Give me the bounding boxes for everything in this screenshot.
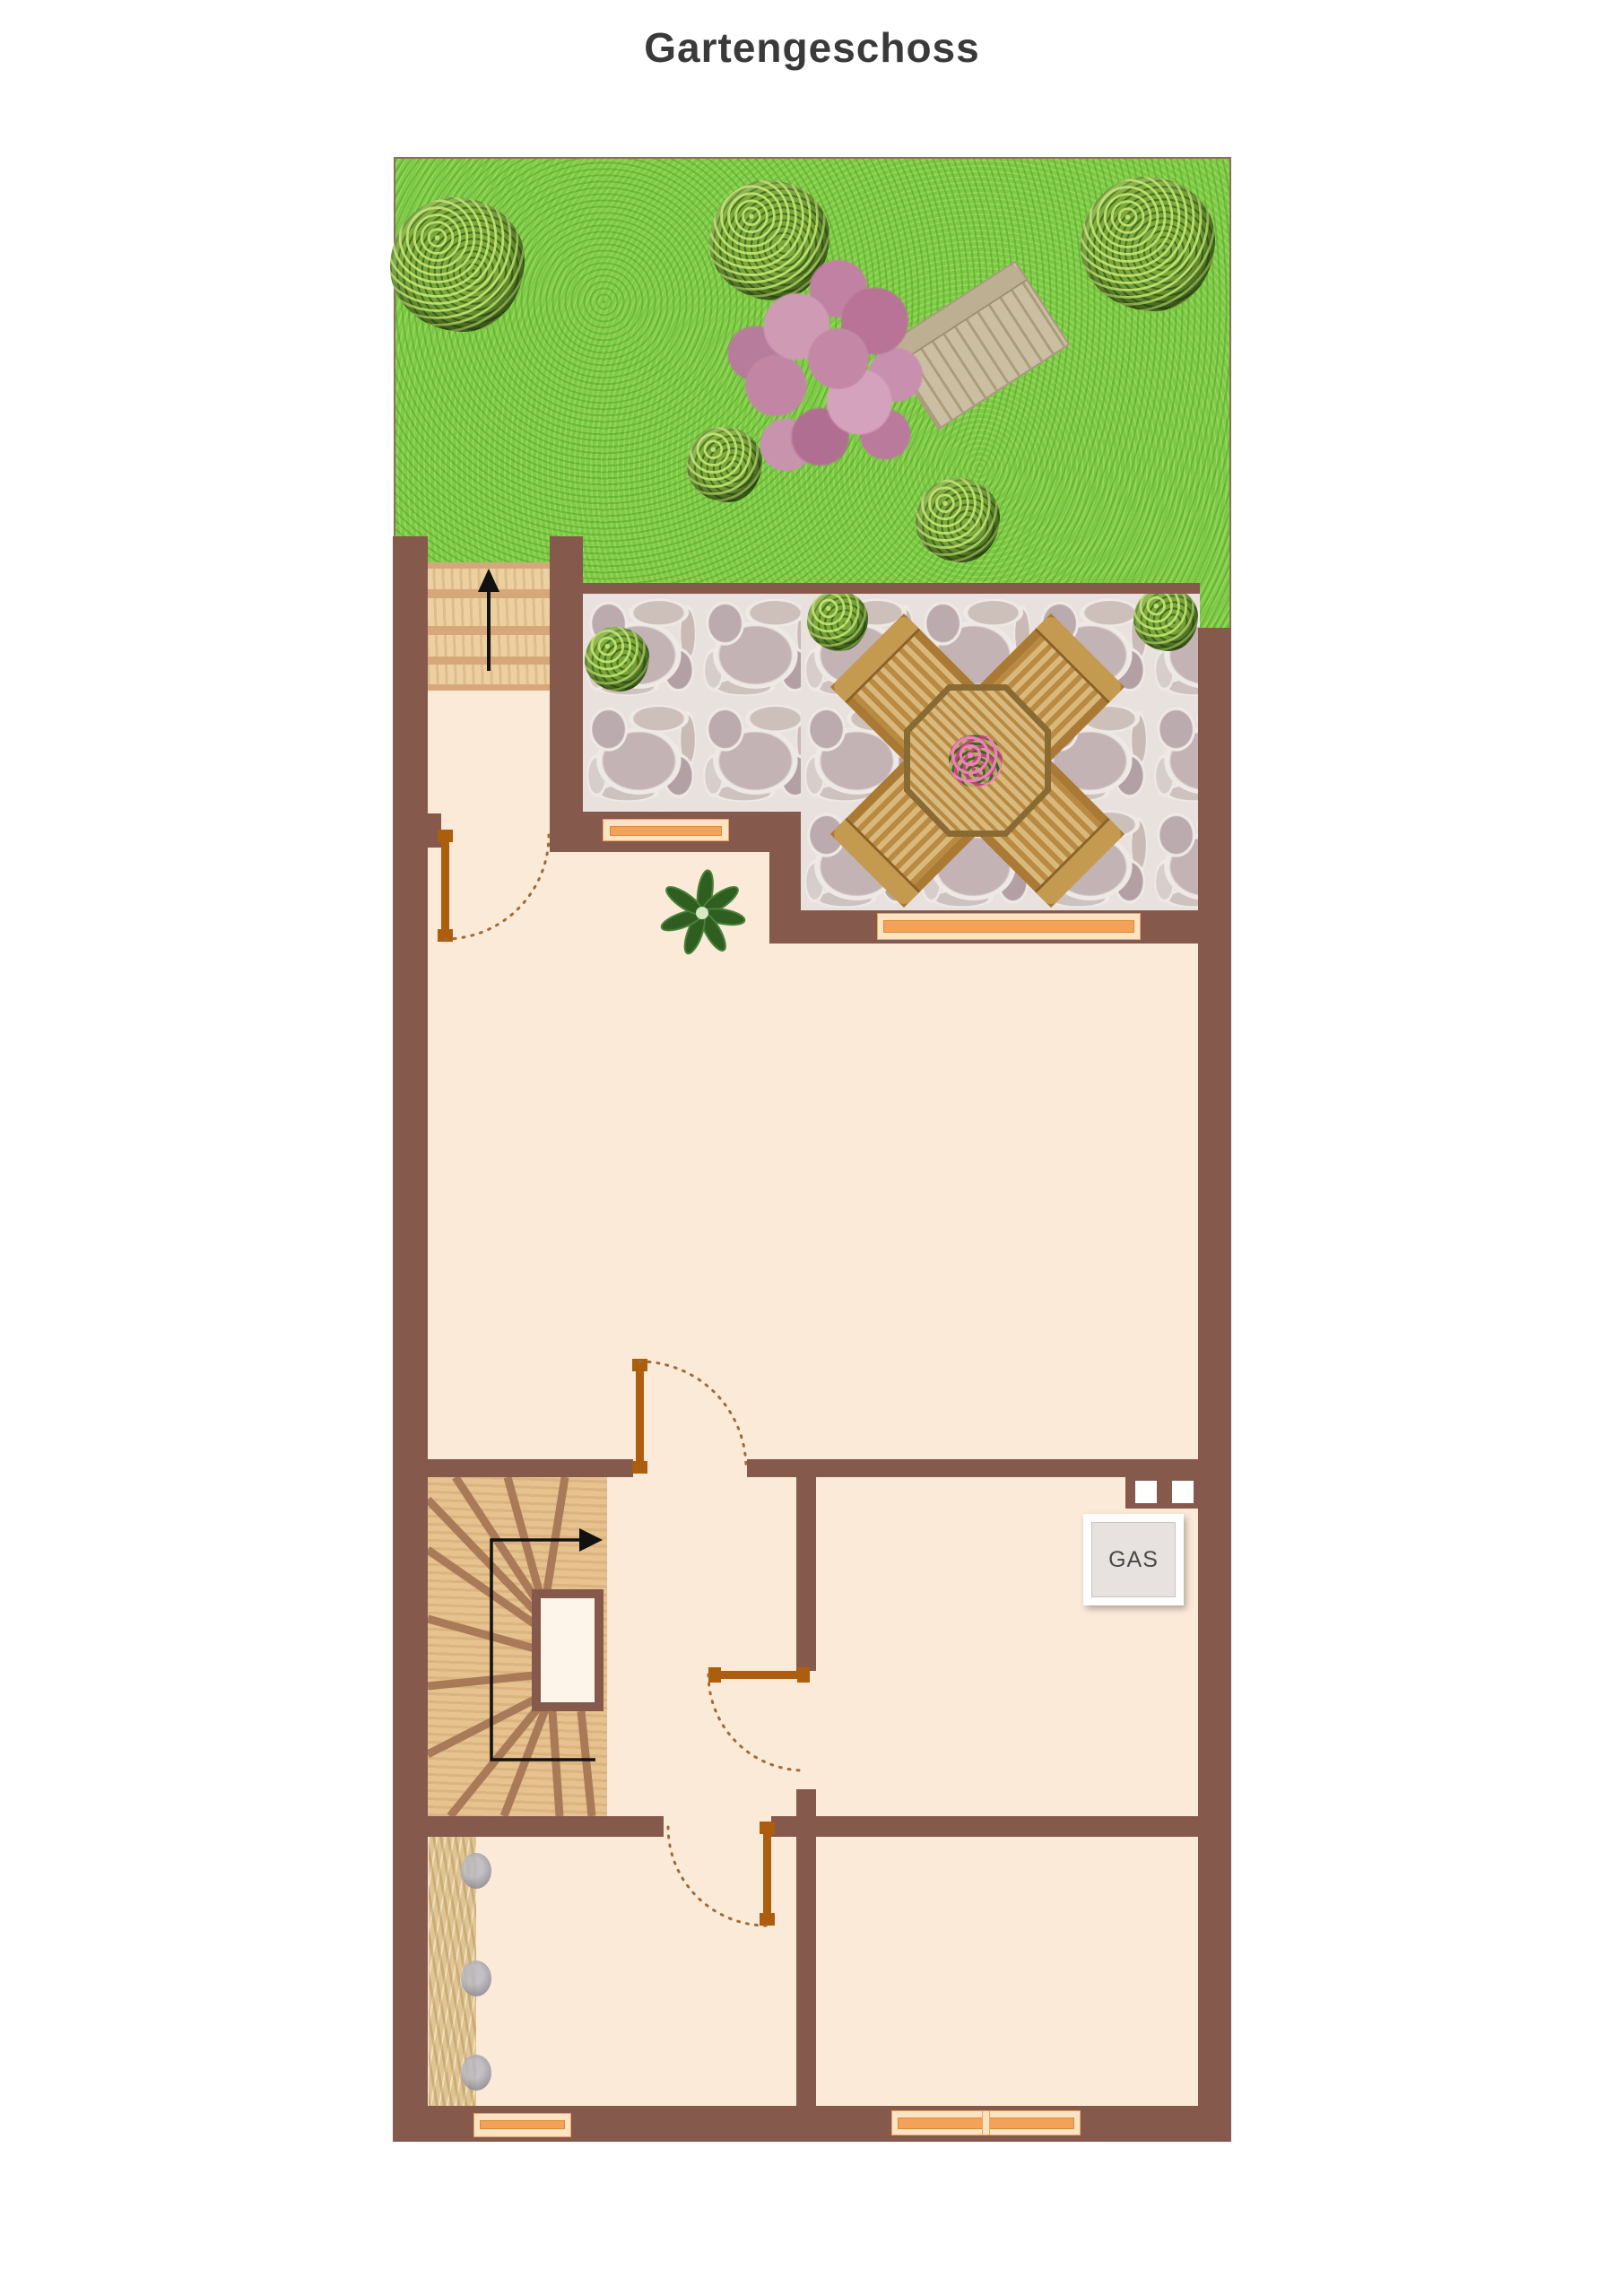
patio-bush — [585, 627, 649, 691]
stair-tread — [428, 626, 550, 635]
wall-hall-east-upper — [796, 1469, 816, 1671]
stair-tread — [428, 589, 550, 598]
door-opening-floor — [664, 1816, 771, 1837]
closet-handle-icon — [461, 1853, 491, 1889]
stair-void — [532, 1589, 604, 1711]
livingroom-door-end — [632, 1359, 647, 1371]
living-room-floor — [769, 944, 1198, 1459]
midroom-door-end — [708, 1667, 721, 1683]
flower-centerpiece — [949, 734, 1003, 787]
patio-bush — [807, 590, 868, 651]
window-south-right-divider — [982, 2110, 990, 2135]
patio-bush — [1133, 587, 1198, 651]
window-patio-left-sash — [610, 826, 722, 836]
window-patio-right-sash — [883, 920, 1134, 933]
floor-plan: Gartengeschoss — [0, 0, 1624, 2296]
page-title: Gartengeschoss — [0, 23, 1624, 72]
gas-meter: GAS — [1083, 1514, 1184, 1605]
hallway-floor — [428, 691, 550, 1459]
door-opening-floor — [633, 1459, 747, 1477]
bottomroom-door-end — [760, 1913, 775, 1926]
wall-patio-north — [583, 583, 1200, 594]
entry-door-end — [438, 929, 453, 942]
stair-tread — [428, 562, 550, 569]
wall-west — [393, 536, 428, 2142]
closet-handle-icon — [461, 2055, 491, 2091]
wall-bottom-rooms-north-right — [771, 1816, 1198, 1837]
wall-step-connector — [769, 852, 801, 910]
chimney-vent — [1135, 1481, 1157, 1503]
stair-tread — [428, 657, 550, 665]
entry-door — [441, 830, 449, 942]
wall-east — [1198, 628, 1231, 2142]
closet-handle-icon — [461, 1961, 491, 1996]
living-room-floor — [550, 852, 769, 1459]
bottomroom-door-hinge — [760, 1822, 775, 1834]
gas-label: GAS — [1091, 1522, 1176, 1597]
garden-bush — [390, 197, 525, 332]
livingroom-door — [636, 1359, 644, 1474]
livingroom-door-hinge — [632, 1461, 647, 1474]
garden-bush — [1081, 177, 1215, 311]
wall-bottom-rooms-north-left — [428, 1816, 664, 1837]
chimney-vent — [1172, 1481, 1194, 1503]
wall-stairwell-east — [550, 536, 583, 813]
window-south-left-sash — [480, 2120, 565, 2129]
bottomroom-door — [763, 1822, 771, 1926]
stair-tread — [428, 684, 550, 691]
wall-mid-left — [428, 1459, 633, 1477]
garden-stairs — [428, 562, 550, 691]
midroom-door — [708, 1671, 810, 1679]
entry-door-hinge — [438, 830, 453, 842]
midroom-door-hinge — [797, 1667, 810, 1683]
blossom-tree — [708, 235, 968, 504]
